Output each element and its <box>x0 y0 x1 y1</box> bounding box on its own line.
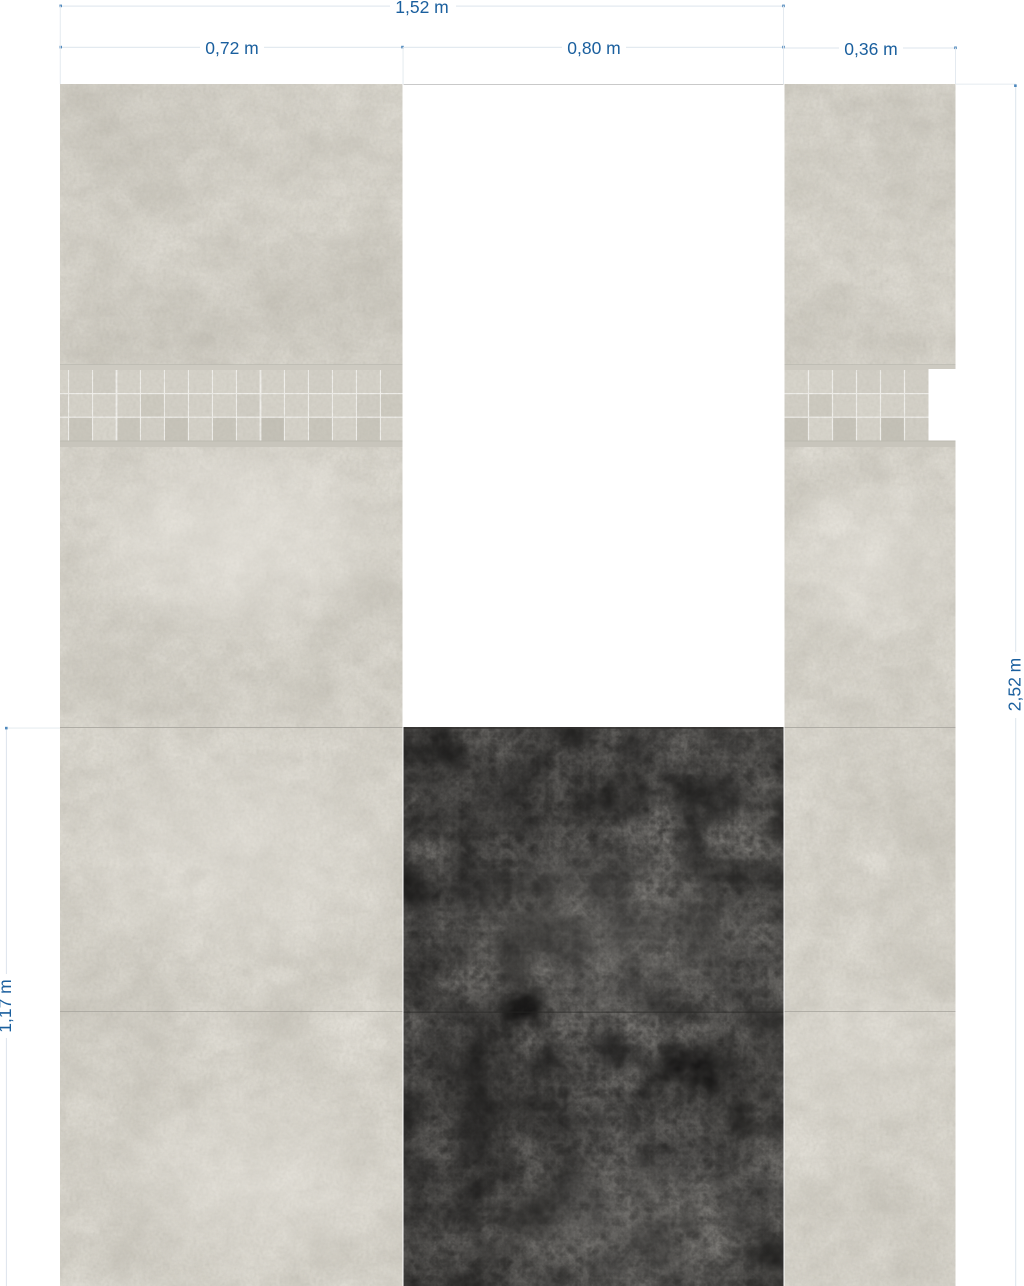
svg-text:0,80 m: 0,80 m <box>567 38 621 58</box>
svg-text:0,72 m: 0,72 m <box>205 38 259 58</box>
svg-text:1,17 m: 1,17 m <box>0 979 15 1033</box>
svg-text:0,36 m: 0,36 m <box>844 39 898 59</box>
svg-text:2,52 m: 2,52 m <box>1005 658 1024 712</box>
svg-text:1,52 m: 1,52 m <box>395 0 449 17</box>
